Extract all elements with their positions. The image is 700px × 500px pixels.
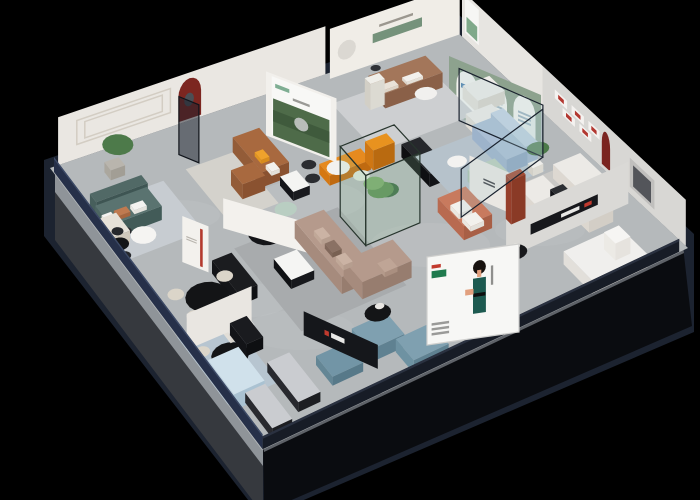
red-trim xyxy=(200,229,203,268)
woman-face xyxy=(477,270,481,278)
rust-pillar-side xyxy=(511,174,525,224)
statue-pedestal-side xyxy=(371,79,385,110)
billboard-vertical-text xyxy=(491,265,493,285)
floorplan-scene xyxy=(0,0,700,500)
isometric-showroom-render xyxy=(0,0,700,500)
glass-screen xyxy=(179,97,199,163)
woman-arm xyxy=(465,289,473,296)
